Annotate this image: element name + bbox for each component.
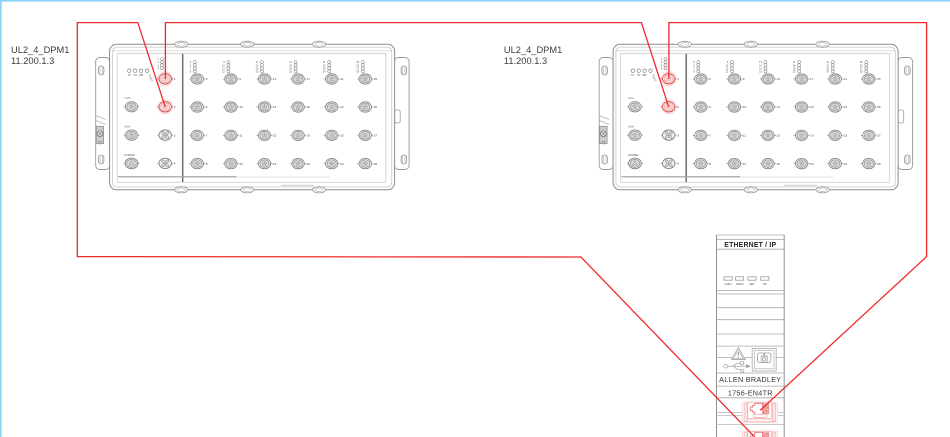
svg-text:P1: P1 [128, 73, 132, 77]
svg-text:P2: P2 [134, 73, 138, 77]
svg-text:26: 26 [374, 105, 378, 109]
svg-text:11.200.1.3: 11.200.1.3 [11, 56, 54, 66]
svg-text:15: 15 [273, 134, 277, 138]
svg-text:RM: RM [139, 73, 143, 77]
svg-text:28: 28 [374, 162, 378, 166]
svg-text:23: 23 [340, 134, 344, 138]
svg-text:11: 11 [239, 134, 242, 138]
svg-text:POWER: POWER [125, 153, 136, 157]
svg-text:1: 1 [174, 77, 176, 81]
svg-text:10: 10 [239, 105, 243, 109]
svg-text:22: 22 [340, 105, 344, 109]
svg-text:21: 21 [340, 77, 344, 81]
svg-text:11.200.1.3: 11.200.1.3 [504, 56, 547, 66]
svg-text:9: 9 [239, 77, 241, 81]
svg-text:ALLEN BRADLEY: ALLEN BRADLEY [719, 375, 781, 384]
svg-text:19: 19 [307, 134, 311, 138]
svg-text:20: 20 [307, 162, 311, 166]
svg-text:V.24: V.24 [125, 96, 131, 100]
svg-text:27: 27 [374, 134, 378, 138]
svg-text:25: 25 [374, 77, 378, 81]
svg-text:14: 14 [273, 105, 277, 109]
svg-text:6: 6 [206, 105, 208, 109]
svg-text:5: 5 [206, 77, 208, 81]
svg-text:LINK2: LINK2 [736, 282, 744, 286]
svg-text:18: 18 [307, 105, 311, 109]
svg-text:2: 2 [174, 105, 176, 109]
svg-text:16: 16 [273, 162, 277, 166]
svg-text:OK: OK [763, 282, 767, 286]
svg-text:UL2_4_DPM1: UL2_4_DPM1 [504, 45, 562, 55]
svg-text:3: 3 [174, 133, 176, 137]
svg-text:1756-EN4TR: 1756-EN4TR [728, 388, 773, 397]
svg-text:ACA: ACA [125, 125, 131, 129]
svg-text:ETHERNET / IP: ETHERNET / IP [724, 242, 776, 249]
svg-text:7: 7 [206, 134, 208, 138]
svg-text:24: 24 [340, 162, 344, 166]
svg-text:12: 12 [239, 162, 243, 166]
svg-text:13: 13 [273, 77, 277, 81]
svg-text:UL2_4_DPM1: UL2_4_DPM1 [11, 45, 69, 55]
svg-text:NET: NET [749, 282, 755, 286]
svg-text:4: 4 [174, 162, 176, 166]
svg-text:17: 17 [307, 77, 311, 81]
svg-text:LINK1: LINK1 [724, 282, 732, 286]
svg-text:8: 8 [206, 162, 208, 166]
